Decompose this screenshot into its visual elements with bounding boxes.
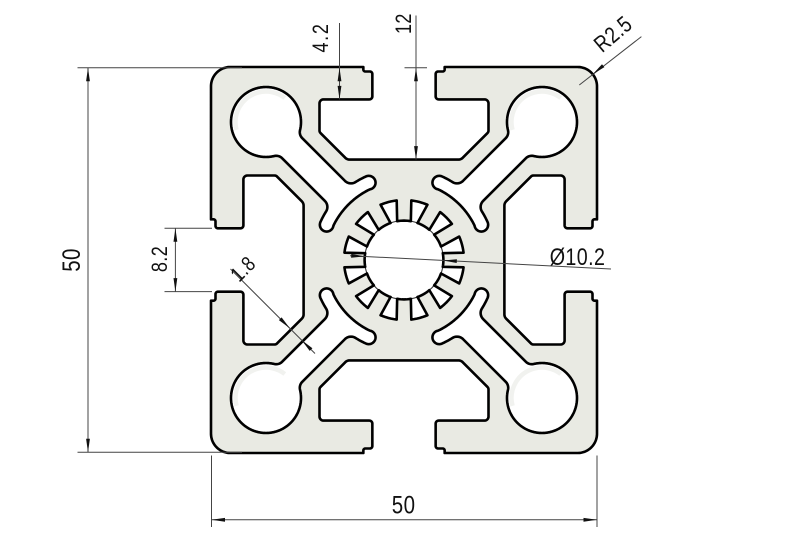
svg-text:50: 50 bbox=[57, 248, 85, 272]
svg-text:8.2: 8.2 bbox=[148, 246, 172, 272]
svg-text:4.2: 4.2 bbox=[309, 23, 333, 53]
svg-text:50: 50 bbox=[392, 491, 416, 519]
svg-text:Ø10.2: Ø10.2 bbox=[550, 243, 606, 270]
svg-text:12: 12 bbox=[392, 13, 416, 34]
